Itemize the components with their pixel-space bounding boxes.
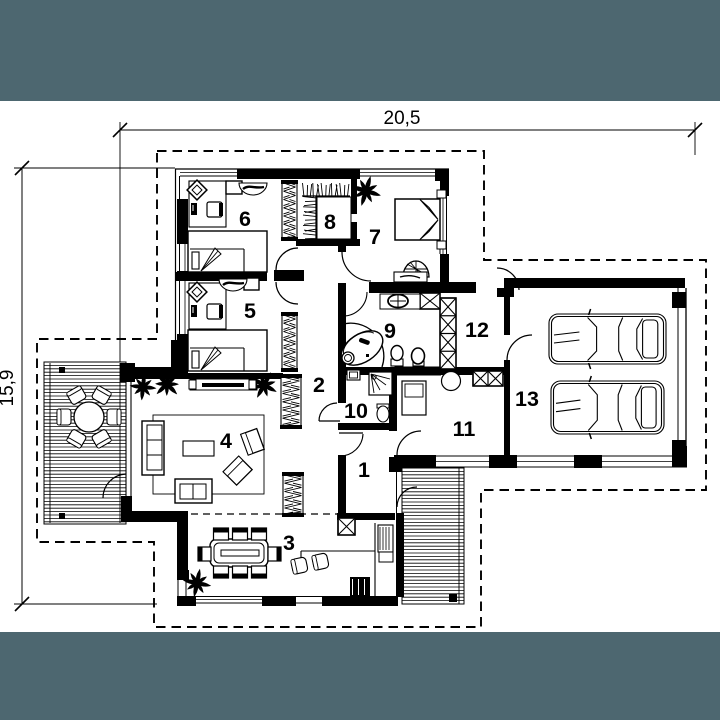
svg-text:12: 12 — [465, 318, 489, 342]
svg-text:3: 3 — [283, 531, 295, 555]
svg-text:6: 6 — [239, 207, 251, 231]
svg-text:7: 7 — [369, 225, 381, 249]
svg-text:10: 10 — [344, 399, 368, 423]
svg-text:9: 9 — [384, 319, 396, 343]
svg-text:13: 13 — [515, 387, 539, 411]
svg-text:20,5: 20,5 — [384, 108, 421, 129]
svg-text:8: 8 — [324, 210, 336, 234]
svg-text:11: 11 — [453, 417, 476, 441]
svg-text:1: 1 — [358, 458, 370, 482]
svg-text:4: 4 — [220, 429, 232, 453]
svg-text:15,9: 15,9 — [0, 370, 18, 407]
svg-text:2: 2 — [313, 373, 325, 397]
svg-text:5: 5 — [244, 299, 256, 323]
